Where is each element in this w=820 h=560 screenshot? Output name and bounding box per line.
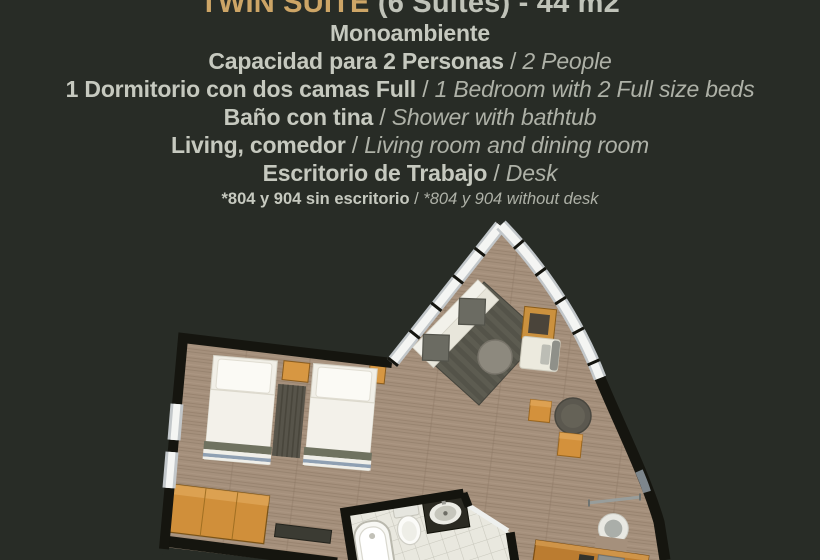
armchair <box>519 336 560 372</box>
bed <box>303 363 380 471</box>
ottoman <box>478 340 512 374</box>
stool <box>528 399 551 422</box>
floor-plan-image <box>0 0 820 560</box>
nightstand <box>282 361 310 383</box>
round-table <box>555 398 591 434</box>
bed <box>203 355 280 465</box>
stool <box>557 432 582 457</box>
suite-info-card: TWIN SUITE (6 Suites) - 44 m2 Monoambien… <box>0 0 820 560</box>
